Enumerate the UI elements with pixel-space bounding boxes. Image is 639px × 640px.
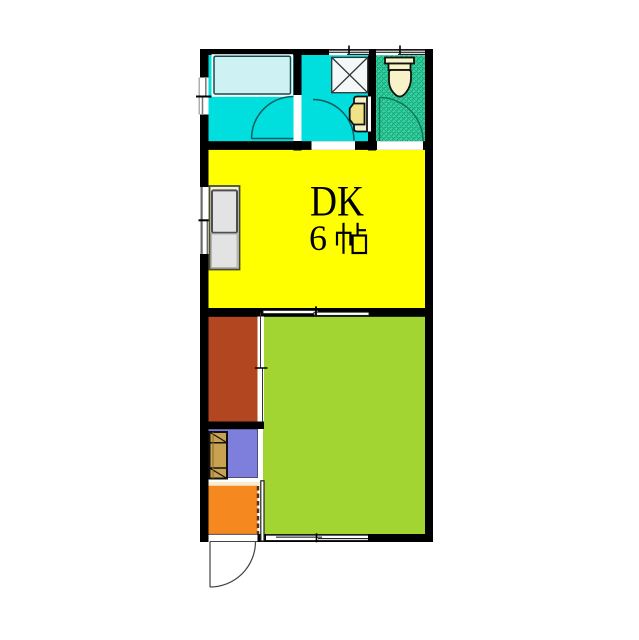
svg-text:6: 6 [309,218,327,258]
